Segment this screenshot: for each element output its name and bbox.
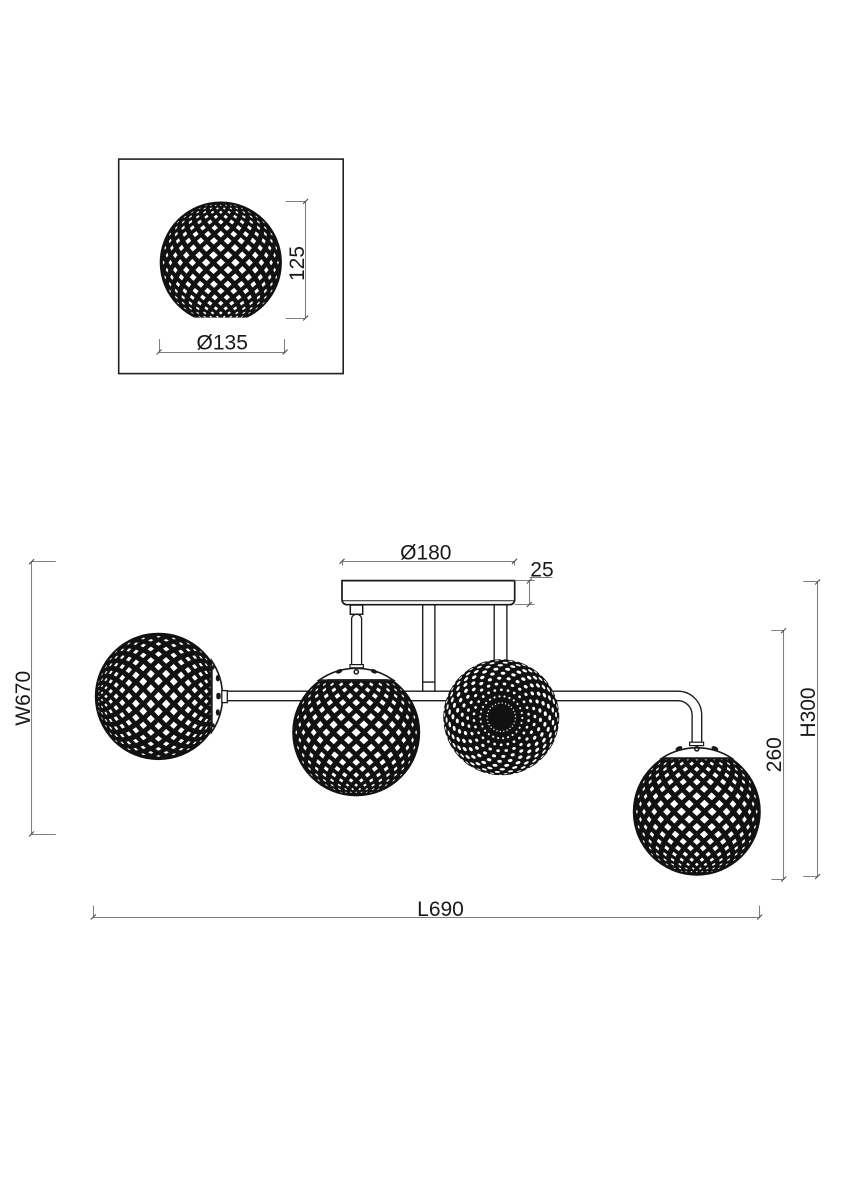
svg-text:25: 25 [530,558,553,581]
svg-text:L690: L690 [417,898,464,921]
svg-text:125: 125 [286,246,309,281]
svg-text:Ø180: Ø180 [400,542,451,565]
svg-text:H300: H300 [797,687,820,737]
svg-text:Ø135: Ø135 [197,332,248,355]
svg-text:260: 260 [763,737,786,772]
svg-text:W670: W670 [12,671,35,726]
